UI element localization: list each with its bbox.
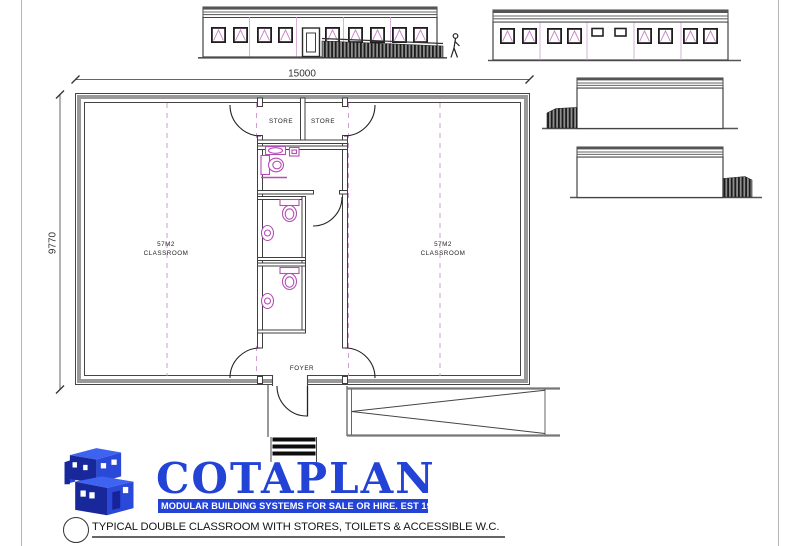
store-left-label: STORE [269, 118, 293, 125]
roof-band [577, 78, 723, 88]
svg-text:CLASSROOM: CLASSROOM [144, 250, 189, 257]
rear-elevation [488, 10, 741, 61]
drawing-title: TYPICAL DOUBLE CLASSROOM WITH STORES, TO… [92, 521, 499, 533]
ramp-end [547, 108, 577, 129]
entrance-and-ramp [268, 374, 560, 462]
plan-ramp [347, 389, 560, 436]
svg-text:57M2: 57M2 [434, 241, 452, 248]
note-reference-circle [63, 517, 89, 543]
front-elevation [198, 7, 460, 58]
roof-band [493, 10, 728, 22]
person-figure [451, 34, 460, 58]
toilet-cistern [280, 200, 299, 206]
dimension-height: 9770 [48, 91, 65, 394]
modular-building-glyph [65, 448, 134, 515]
dim-height-label: 9770 [48, 231, 59, 254]
logo-tagline-band: MODULAR BUILDING SYSTEMS FOR SALE OR HIR… [158, 499, 428, 513]
small-window [592, 29, 603, 37]
title-underline [92, 536, 505, 538]
dim-width-label: 15000 [288, 69, 316, 80]
svg-text:CLASSROOM: CLASSROOM [421, 250, 466, 257]
cotaplan-logo-icon [62, 441, 152, 517]
entrance-door [303, 28, 320, 57]
ramp-end [723, 177, 752, 198]
entrance-door-arc [277, 386, 307, 416]
dimension-width: 15000 [72, 69, 534, 84]
floor-plan: STORE STORE FOYER 57M2 CLASSROOM 57M2 CL… [76, 94, 561, 463]
small-window [615, 29, 626, 37]
toilet-cistern [280, 268, 299, 274]
side-elevation-bottom [570, 147, 762, 198]
logo-door [112, 490, 120, 509]
roof-band [577, 147, 723, 157]
svg-text:57M2: 57M2 [157, 241, 175, 248]
roof-band [203, 7, 437, 18]
entrance-opening [273, 374, 308, 386]
logo-tagline: MODULAR BUILDING SYSTEMS FOR SALE OR HIR… [158, 499, 428, 513]
store-right-label: STORE [311, 118, 335, 125]
logo-wordmark: COTAPLAN [156, 458, 432, 500]
foyer-label: FOYER [290, 365, 314, 372]
drawing-sheet: 15000 9770 [0, 0, 800, 546]
side-elevation-top [542, 78, 738, 129]
